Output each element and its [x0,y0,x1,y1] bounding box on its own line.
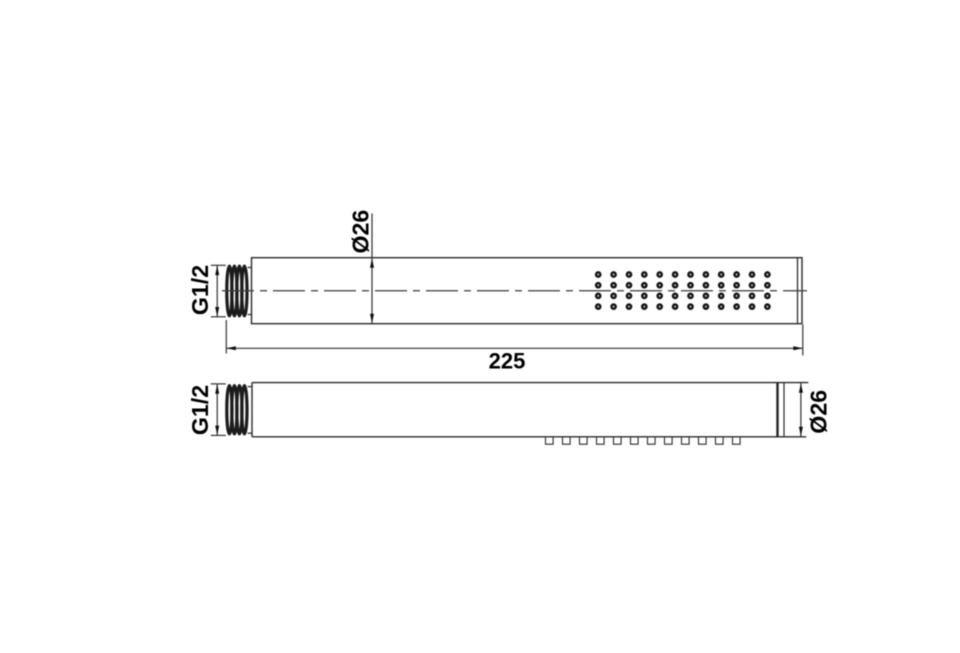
svg-text:225: 225 [489,348,526,373]
svg-text:G1/2: G1/2 [187,385,213,435]
svg-text:G1/2: G1/2 [187,265,213,315]
svg-text:Ø26: Ø26 [806,390,832,434]
svg-text:Ø26: Ø26 [348,210,374,254]
